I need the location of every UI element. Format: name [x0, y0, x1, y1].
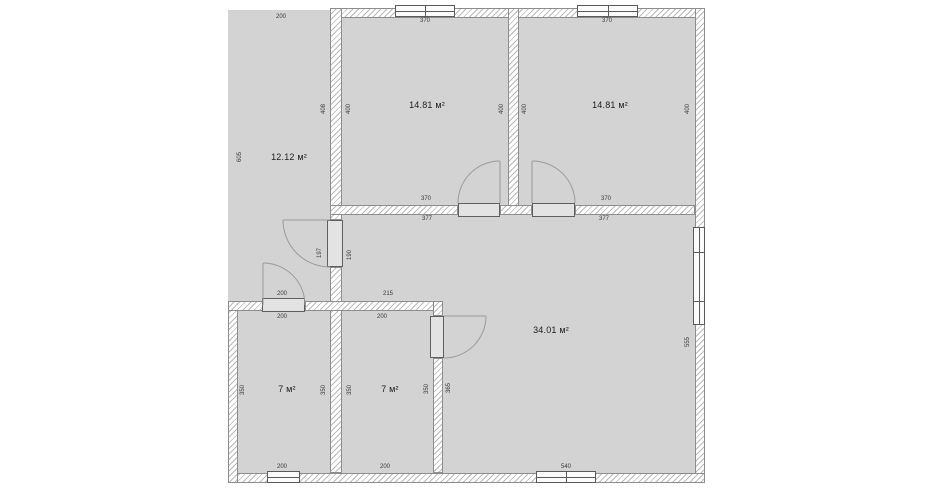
window-bedroom-1 [395, 5, 455, 17]
dim-kid2-wall-outer: 365 [446, 383, 452, 393]
room-bedroom-2: 14.81 м² [519, 18, 694, 205]
window-living-bottom [536, 471, 596, 483]
door-porch-living [327, 220, 343, 267]
dim-bed2-left: 400 [522, 104, 528, 114]
dim-bed2-bottom-outer: 377 [599, 216, 609, 222]
window-bedroom-2 [577, 5, 638, 17]
wall-between-bedrooms [508, 8, 519, 215]
wall-kids-top-b [305, 301, 443, 311]
wall-porch-upper [330, 8, 342, 220]
room-area-label: 7 м² [278, 384, 296, 394]
wall-left-lower [228, 301, 238, 483]
dim-living-window-right: 555 [685, 337, 691, 347]
dim-bed2-bottom: 370 [601, 196, 611, 202]
wall-porch-lower [330, 267, 342, 473]
dim-porch-top: 200 [276, 14, 286, 20]
room-area-label: 12.12 м² [271, 152, 307, 162]
dim-living-wall-left: 215 [383, 291, 393, 297]
door-bedroom-1 [458, 203, 500, 217]
dim-bed2-window: 370 [602, 18, 612, 24]
dim-bed1-bottom: 370 [421, 196, 431, 202]
floor-plan: 12.12 м² 14.81 м² 14.81 м² 34.01 м² 7 м²… [0, 0, 930, 488]
room-kids-1: 7 м² [238, 311, 330, 473]
window-living-right [693, 227, 705, 325]
room-bedroom-1: 14.81 м² [343, 18, 508, 205]
door-porch-kids-1 [262, 298, 305, 312]
dim-kid2-bottom: 200 [380, 464, 390, 470]
wall-kids-right-b [433, 358, 443, 473]
dim-kid2-right: 350 [424, 384, 430, 394]
dim-bed1-wall-outer: 408 [321, 104, 327, 114]
dim-bed1-bottom-outer: 377 [422, 216, 432, 222]
dim-bed1-window: 370 [420, 18, 430, 24]
dim-kid1-left: 350 [240, 385, 246, 395]
dim-kid1-bottom: 200 [277, 464, 287, 470]
dim-kid1-top: 200 [277, 314, 287, 320]
dim-porch-left: 605 [237, 152, 243, 162]
door-bedroom-2 [532, 203, 575, 217]
room-area-label: 34.01 м² [533, 325, 569, 335]
dim-hall-door-a: 197 [317, 248, 323, 258]
room-area-label: 14.81 м² [592, 100, 628, 110]
dim-bed1-right: 400 [499, 104, 505, 114]
room-area-label: 7 м² [381, 384, 399, 394]
room-porch: 12.12 м² [228, 10, 330, 301]
wall-mid-horizontal-b [500, 205, 532, 215]
wall-kids-top-a [228, 301, 263, 311]
dim-kid2-top: 200 [377, 314, 387, 320]
room-kids-2: 7 м² [342, 311, 433, 473]
dim-kid2-left: 350 [347, 385, 353, 395]
wall-mid-horizontal-c [575, 205, 695, 215]
dim-bed2-right: 400 [685, 104, 691, 114]
door-kids-2-living [430, 316, 444, 358]
dim-bed1-left: 400 [346, 104, 352, 114]
wall-mid-horizontal-a [330, 205, 458, 215]
wall-kids-right-a [433, 301, 443, 316]
window-kids-1 [267, 471, 300, 483]
room-area-label: 14.81 м² [409, 100, 445, 110]
dim-kid1-right: 350 [321, 385, 327, 395]
dim-porch-door: 200 [277, 291, 287, 297]
dim-living-window-bottom: 540 [561, 464, 571, 470]
dim-hall-door-b: 190 [347, 250, 353, 260]
